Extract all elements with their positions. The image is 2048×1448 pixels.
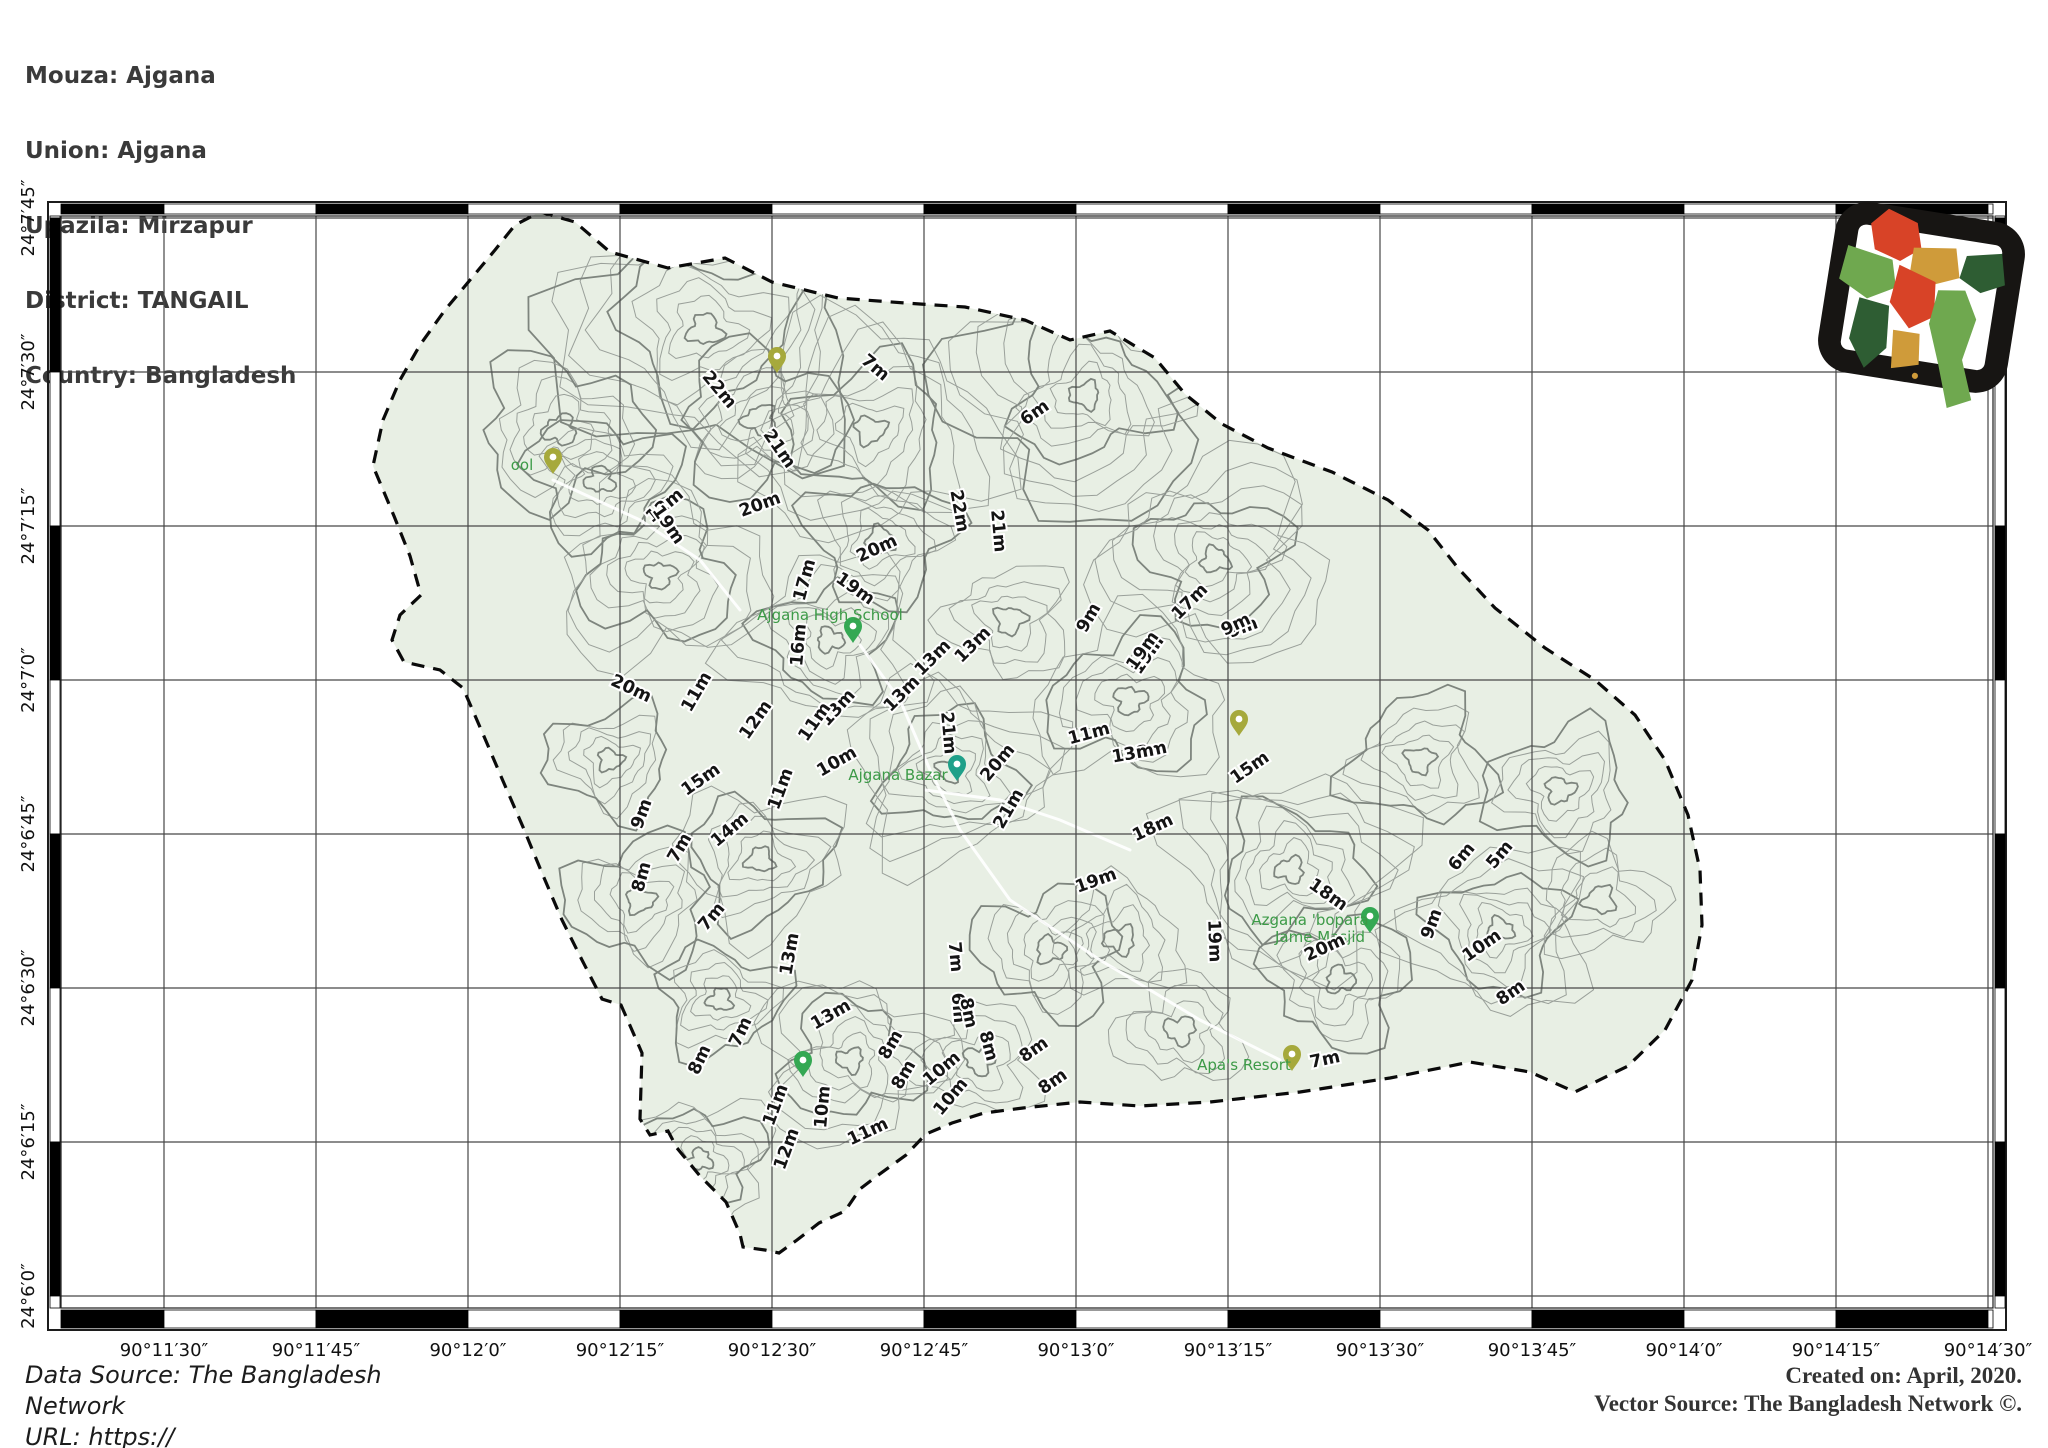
mouza-map-page: Mouza: Ajgana Union: Ajgana Upazila: Mir… [0, 0, 2048, 1448]
x-tick-label: 90°12′30″ [728, 1340, 817, 1361]
map-canvas[interactable]: Ajgana High SchoolAjgana BazarAzgana 'bo… [0, 0, 2048, 1448]
poi-label: ool [511, 456, 534, 474]
y-tick-label: 24°7′0″ [18, 647, 39, 713]
contour-elevation-label: 16m [787, 623, 811, 667]
data-source-line1: Data Source: The Bangladesh [25, 1360, 382, 1391]
x-tick-label: 90°11′30″ [120, 1340, 209, 1361]
x-tick-label: 90°13′15″ [1184, 1340, 1273, 1361]
y-tick-label: 24°6′0″ [18, 1263, 39, 1329]
bangladesh-inset-map [1810, 200, 2040, 415]
poi-label: Apa's Resort [1197, 1056, 1291, 1074]
y-tick-label: 24°7′45″ [18, 179, 39, 256]
contour-elevation-label: 19m [1203, 919, 1224, 962]
y-tick-label: 24°7′30″ [18, 333, 39, 410]
y-tick-label: 24°6′45″ [18, 795, 39, 872]
x-tick-label: 90°12′0″ [429, 1340, 506, 1361]
mouza-land-area [373, 212, 1702, 1253]
data-source-line2: Network [25, 1391, 382, 1422]
x-tick-label: 90°13′45″ [1488, 1340, 1577, 1361]
contour-elevation-label: 21m [936, 711, 960, 755]
x-tick-label: 90°11′45″ [272, 1340, 361, 1361]
contour-elevation-label: 7m [944, 941, 967, 973]
poi-label: Ajgana High School [757, 606, 903, 624]
y-tick-label: 24°6′15″ [18, 1103, 39, 1180]
x-tick-label: 90°12′15″ [576, 1340, 665, 1361]
x-tick-label: 90°14′15″ [1792, 1340, 1881, 1361]
y-tick-label: 24°7′15″ [18, 487, 39, 564]
data-source-block: Data Source: The Bangladesh Network URL:… [25, 1360, 382, 1448]
contour-elevation-label: 21m [986, 509, 1010, 553]
x-tick-label: 90°13′30″ [1336, 1340, 1425, 1361]
poi-label: Ajgana Bazar [848, 766, 948, 784]
x-tick-label: 90°12′45″ [880, 1340, 969, 1361]
credits-block: Created on: April, 2020. Vector Source: … [1594, 1362, 2022, 1418]
data-source-url: URL: https:// [25, 1422, 382, 1448]
x-tick-label: 90°13′0″ [1037, 1340, 1114, 1361]
x-tick-label: 90°14′0″ [1645, 1340, 1722, 1361]
created-on-line: Created on: April, 2020. [1594, 1362, 2022, 1390]
y-tick-label: 24°6′30″ [18, 949, 39, 1026]
vector-source-line: Vector Source: The Bangladesh Network ©. [1594, 1390, 2022, 1418]
x-tick-label: 90°14′30″ [1944, 1340, 2033, 1361]
poi-label: Azgana 'bopara [1251, 911, 1368, 929]
contour-elevation-label: 10m [811, 1085, 835, 1129]
